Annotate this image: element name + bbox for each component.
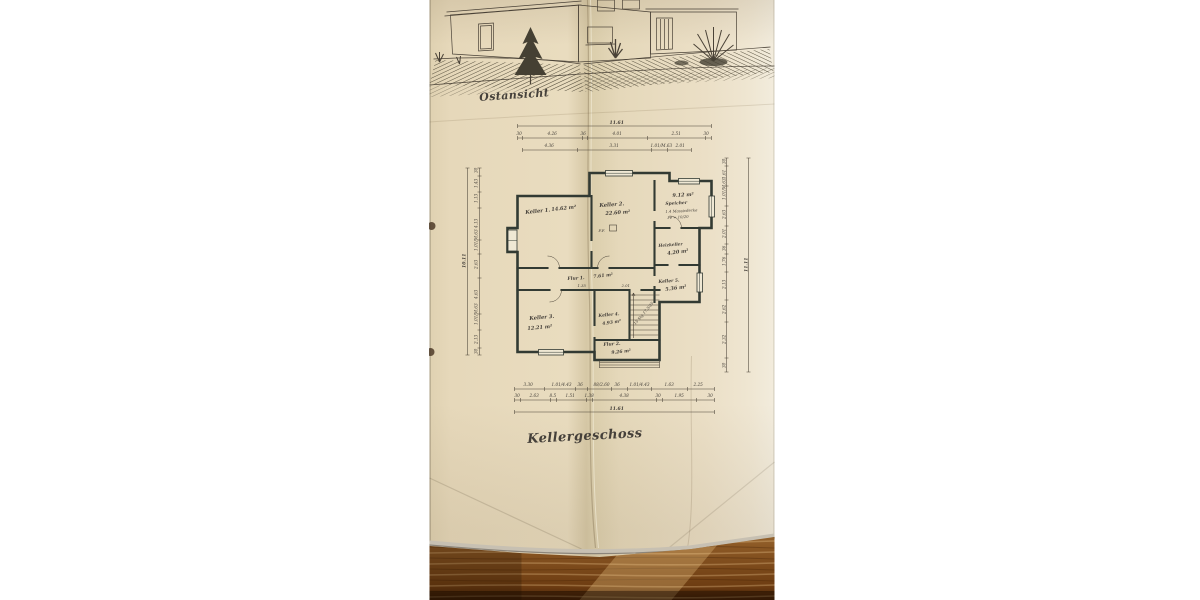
photo-of-floor-plan-document: Ostansicht bbox=[0, 0, 1200, 600]
dim-label: 1.63 bbox=[665, 382, 675, 387]
dim-label: 2.01 bbox=[722, 229, 727, 239]
table-edge bbox=[430, 591, 775, 600]
dim-label: 4.01 bbox=[612, 131, 622, 136]
dim-label: 30 bbox=[708, 393, 714, 398]
dim-total-left: 10.11 bbox=[462, 254, 468, 268]
dim-label: 2.01 bbox=[675, 143, 685, 148]
dim-label: 30 bbox=[656, 393, 662, 398]
dim-label: 30 bbox=[722, 362, 727, 368]
ff-mark: F.F. bbox=[598, 228, 606, 233]
dim-total-right: 11.11 bbox=[744, 258, 750, 272]
dim-label: 1.76 bbox=[722, 256, 727, 266]
dim-label: 4.38 bbox=[619, 393, 630, 398]
dim-label: 30 bbox=[515, 393, 521, 398]
dim-label: 1.13 bbox=[474, 193, 479, 203]
dim-label: 2.25 bbox=[693, 382, 704, 387]
dim-label: 1.01/M.63 bbox=[474, 229, 479, 251]
dim-label: 1.43 bbox=[474, 178, 479, 188]
photo-strip: Ostansicht bbox=[429, 0, 775, 600]
dim-label: 36 bbox=[722, 245, 727, 251]
dim-label: 30 bbox=[704, 131, 710, 136]
dim-label: 1.01/M.63 bbox=[651, 143, 673, 148]
dim-label: 1.61 bbox=[722, 170, 727, 179]
dim-label: 4.63 bbox=[474, 289, 479, 300]
dim-label: 1.95 bbox=[675, 393, 685, 398]
dim-label: 88/2.60 bbox=[594, 382, 610, 387]
room-name: Flur 1. bbox=[566, 275, 585, 282]
dim-label: 1.38 bbox=[585, 393, 595, 398]
dim-total-bottom: 11.61 bbox=[610, 406, 624, 412]
dim-label: 1.01/4.43 bbox=[552, 382, 572, 387]
dim-label: 1.51 bbox=[566, 393, 575, 398]
bush bbox=[675, 61, 689, 66]
dim-label: 36 bbox=[578, 382, 584, 387]
dim-label: 30 bbox=[722, 158, 727, 164]
photo-svg: Ostansicht bbox=[429, 0, 775, 600]
room-area: 9.12 m² bbox=[672, 192, 694, 199]
shrub-base bbox=[700, 58, 728, 66]
dim-total-top: 11.61 bbox=[610, 120, 624, 126]
dim-label: 2.13 bbox=[722, 279, 727, 290]
dim-label: 1.01/M.63 bbox=[474, 303, 479, 325]
dim-label: 36 bbox=[615, 382, 621, 387]
dim-label: 1.01/M.63 bbox=[722, 178, 727, 200]
dim-label: 4.36 bbox=[544, 143, 555, 148]
dim-label: 2.63 bbox=[722, 209, 727, 220]
dim-label: 3.31 bbox=[610, 143, 619, 148]
dim-label: 3.30 bbox=[524, 382, 534, 387]
dim-label: 4.13 bbox=[474, 218, 479, 229]
dim-label: 30 bbox=[474, 348, 479, 354]
dim-label: 2.62 bbox=[722, 304, 727, 315]
dim-label: 2.32 bbox=[722, 334, 727, 345]
dim-label: 4.26 bbox=[547, 131, 558, 136]
dim-label: 2.63 bbox=[474, 259, 479, 270]
dim-label: 2.63 bbox=[529, 393, 540, 398]
dim-label: 30 bbox=[517, 131, 523, 136]
dim-label: 2.51 bbox=[671, 131, 681, 136]
inner-dim: 1.35 bbox=[578, 283, 587, 288]
dim-label: 36 bbox=[581, 131, 587, 136]
dim-label: 8.5 bbox=[550, 393, 557, 398]
dim-label: 2.13 bbox=[474, 334, 479, 345]
dim-label: 30 bbox=[474, 167, 479, 173]
dim-label: 1.01/4.43 bbox=[630, 382, 650, 387]
inner-dim: 2.01 bbox=[621, 283, 630, 288]
